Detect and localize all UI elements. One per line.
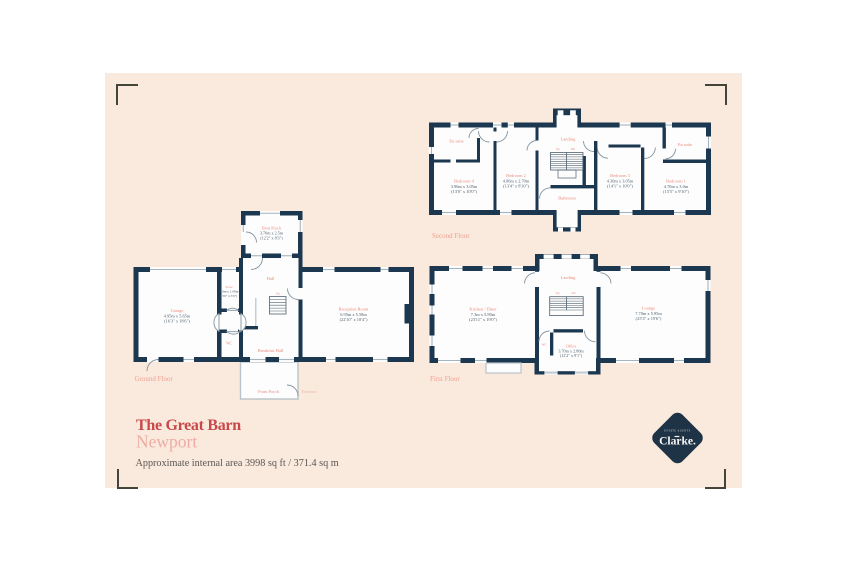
svg-text:3.96m x 3.05m: 3.96m x 3.05m bbox=[451, 184, 478, 189]
svg-text:Landing: Landing bbox=[561, 275, 576, 280]
svg-text:Ground Floor: Ground Floor bbox=[135, 375, 174, 383]
svg-text:Dn: Dn bbox=[572, 291, 576, 295]
svg-text:(16'3" x 18'6"): (16'3" x 18'6") bbox=[164, 319, 190, 324]
svg-text:Bathroom: Bathroom bbox=[558, 196, 576, 201]
svg-text:(13'0" x 10'0"): (13'0" x 10'0") bbox=[451, 189, 477, 194]
svg-text:Bedroom 3: Bedroom 3 bbox=[610, 173, 630, 178]
svg-text:Newport: Newport bbox=[136, 432, 197, 452]
svg-text:First Floor: First Floor bbox=[430, 375, 460, 383]
svg-text:(15'5" x 9'10"): (15'5" x 9'10") bbox=[663, 189, 689, 194]
svg-text:Landing: Landing bbox=[561, 137, 576, 142]
svg-text:(25'3" x 19'6"): (25'3" x 19'6") bbox=[636, 316, 662, 321]
svg-text:Bedroom 1: Bedroom 1 bbox=[666, 179, 686, 184]
svg-text:Reception Room: Reception Room bbox=[339, 307, 369, 312]
svg-text:4.70m x 3.0m: 4.70m x 3.0m bbox=[664, 184, 689, 189]
svg-text:Breakfast Hall: Breakfast Hall bbox=[258, 348, 284, 353]
svg-text:Front Porch: Front Porch bbox=[258, 389, 280, 394]
svg-text:WC: WC bbox=[542, 343, 547, 347]
svg-text:(22'10" x 18'4"): (22'10" x 18'4") bbox=[340, 317, 368, 322]
svg-text:(3'0" x 3'6"): (3'0" x 3'6") bbox=[221, 294, 237, 298]
svg-text:Clarke.: Clarke. bbox=[659, 436, 696, 448]
svg-text:Approximate internal area 3998: Approximate internal area 3998 sq ft / 3… bbox=[136, 458, 339, 469]
svg-text:Bedroom 4: Bedroom 4 bbox=[454, 179, 474, 184]
svg-text:Up: Up bbox=[556, 147, 560, 151]
svg-text:Bedroom 2: Bedroom 2 bbox=[506, 173, 526, 178]
svg-text:Entrance: Entrance bbox=[302, 389, 317, 394]
svg-text:Kitchen / Diner: Kitchen / Diner bbox=[469, 307, 497, 312]
svg-text:Up: Up bbox=[276, 292, 280, 296]
svg-text:4.30m x 3.05m: 4.30m x 3.05m bbox=[607, 178, 634, 183]
svg-text:Up: Up bbox=[556, 291, 560, 295]
svg-text:7.3m x 5.80m: 7.3m x 5.80m bbox=[471, 312, 496, 317]
svg-text:(23'11" x 19'0"): (23'11" x 19'0") bbox=[469, 317, 497, 322]
svg-text:Hall: Hall bbox=[267, 276, 275, 281]
svg-text:En suite: En suite bbox=[449, 139, 463, 144]
svg-text:0.9m x 1.08m: 0.9m x 1.08m bbox=[220, 289, 239, 293]
svg-text:Second Floor: Second Floor bbox=[432, 232, 470, 240]
svg-text:(14'1" x 10'0"): (14'1" x 10'0") bbox=[607, 184, 633, 189]
svg-text:(13'4" x 8'10"): (13'4" x 8'10") bbox=[503, 184, 529, 189]
svg-text:4.06m x 2.70m: 4.06m x 2.70m bbox=[503, 178, 530, 183]
svg-text:Dn: Dn bbox=[571, 147, 575, 151]
svg-text:7.70m x 5.95m: 7.70m x 5.95m bbox=[635, 311, 662, 316]
svg-text:4.95m x 5.65m: 4.95m x 5.65m bbox=[164, 313, 191, 318]
svg-text:En suite: En suite bbox=[678, 142, 692, 147]
svg-text:Lounge: Lounge bbox=[642, 306, 655, 311]
svg-text:WC: WC bbox=[226, 342, 232, 346]
svg-text:Store: Store bbox=[225, 285, 233, 289]
svg-text:ESTATE AGENTS: ESTATE AGENTS bbox=[664, 430, 690, 433]
svg-text:Garage: Garage bbox=[171, 308, 184, 313]
svg-text:(12'2" x 8'3"): (12'2" x 8'3") bbox=[260, 236, 283, 241]
svg-text:6.95m x 5.58m: 6.95m x 5.58m bbox=[340, 312, 367, 317]
svg-text:(12'2" x 9'1"): (12'2" x 9'1") bbox=[560, 353, 583, 358]
